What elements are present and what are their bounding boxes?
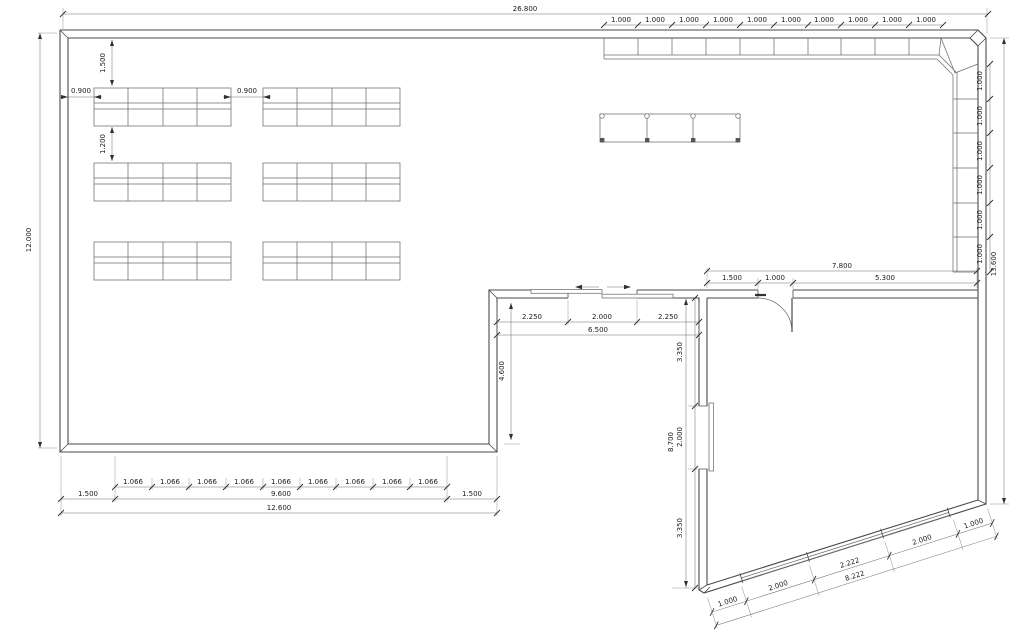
dim-label: 1.000 [976,244,984,264]
dim-label: 1.000 [781,16,801,24]
pocket-door [709,403,714,471]
dim-label: 3.350 [676,342,684,362]
floor-plan-page: 26.800 1.000 1.000 1.000 1.000 1.000 1.0… [0,0,1024,638]
paper-background [0,0,1024,638]
dim-label: 1.066 [308,478,329,486]
dim-label: 1.000 [976,175,984,195]
dim-label: 1.000 [882,16,902,24]
dim-label: 4.600 [498,361,506,381]
dim-label: 26.800 [513,5,538,13]
dim-label: 5.300 [875,274,895,282]
dim-label: 1.000 [814,16,834,24]
dim-label: 1.500 [722,274,742,282]
dim-label: 1.066 [382,478,403,486]
dim-label: 1.000 [848,16,868,24]
dim-label: 2.000 [592,313,612,321]
dim-label: 1.066 [234,478,255,486]
dim-label: 3.350 [676,518,684,538]
dim-label: 7.800 [832,262,852,270]
dim-label: 0.900 [71,87,91,95]
dim-label: 1.000 [916,16,936,24]
dim-label: 9.600 [271,490,291,498]
floor-plan-canvas: 26.800 1.000 1.000 1.000 1.000 1.000 1.0… [0,0,1024,638]
dim-label: 1.500 [78,490,98,498]
dim-label: 1.000 [747,16,767,24]
dim-label: 1.000 [645,16,665,24]
dim-label: 1.000 [765,274,785,282]
dim-label: 1.000 [976,106,984,126]
dim-label: 1.000 [679,16,699,24]
dim-label: 0.900 [237,87,257,95]
dim-label: 1.000 [611,16,631,24]
dim-label: 1.066 [345,478,366,486]
dim-label: 12.600 [267,504,292,512]
dim-label: 12.000 [25,228,33,253]
dim-label: 1.066 [418,478,439,486]
dim-label: 2.250 [658,313,678,321]
dim-label: 1.000 [713,16,733,24]
dim-label: 1.066 [160,478,181,486]
dim-label: 1.000 [976,210,984,230]
dim-label: 1.066 [197,478,218,486]
dim-label: 1.066 [271,478,292,486]
dim-label: 13.600 [990,252,998,277]
dim-label: 1.000 [976,71,984,91]
dim-label: 1.200 [99,134,107,154]
dim-label: 1.066 [123,478,144,486]
dim-label: 2.000 [676,427,684,447]
dim-label: 6.500 [588,326,608,334]
dim-label: 1.000 [976,141,984,161]
dim-label: 2.250 [522,313,542,321]
dim-label: 1.500 [462,490,482,498]
dim-label: 8.700 [667,432,675,452]
dim-label: 1.500 [99,53,107,73]
